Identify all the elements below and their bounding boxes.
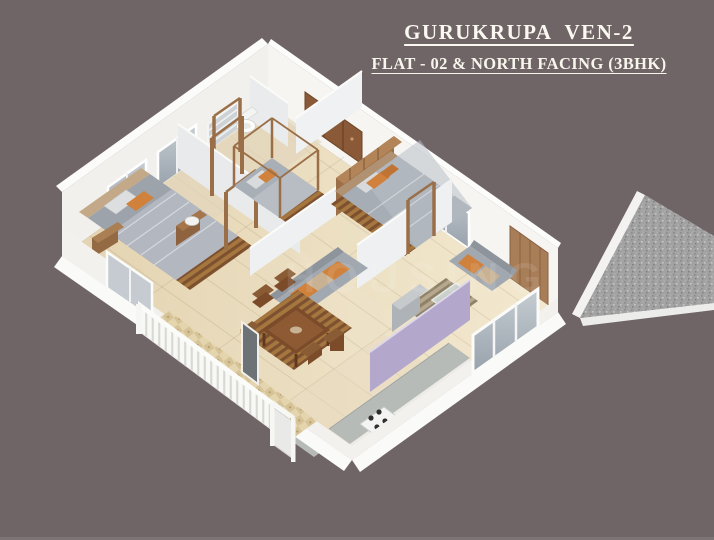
flat-subtitle: FLAT - 02 & NORTH FACING (3BHK): [349, 54, 689, 74]
project-title: GURUKRUPA VEN-2: [349, 20, 689, 45]
watermark-text: HOUSING: [285, 254, 551, 301]
balcony-slider-door: [242, 322, 258, 384]
floorplan-page: GURUKRUPA VEN-2 FLAT - 02 & NORTH FACING…: [0, 0, 714, 540]
header: GURUKRUPA VEN-2 FLAT - 02 & NORTH FACING…: [349, 20, 689, 74]
granite-passage-strip: [572, 191, 714, 326]
floorplan-3d-render: HOUSING: [0, 0, 714, 540]
